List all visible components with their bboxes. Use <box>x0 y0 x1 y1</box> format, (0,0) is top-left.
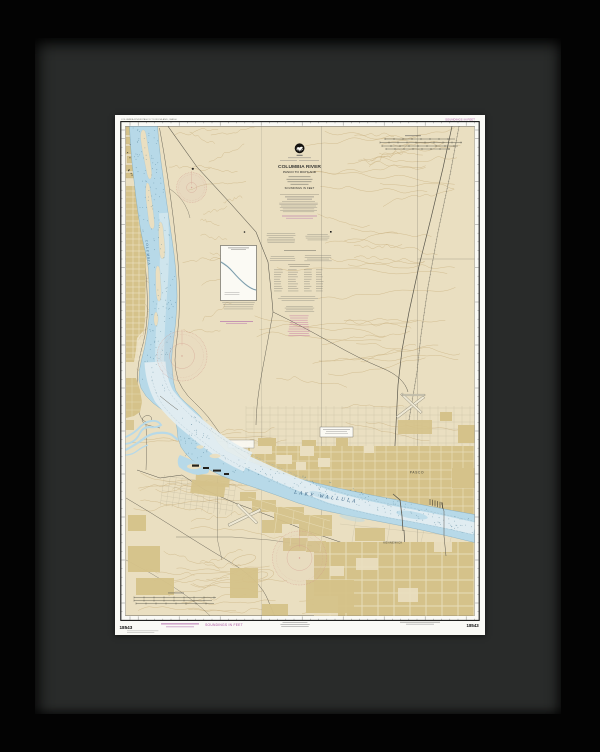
svg-text:COLUMBIA RIVER: COLUMBIA RIVER <box>278 164 322 170</box>
svg-text:COLUMBIA RIVER PASCO TO RICHLA: COLUMBIA RIVER PASCO TO RICHLAND, WASH. <box>121 118 177 121</box>
svg-text:SOUNDINGS IN FEET: SOUNDINGS IN FEET <box>445 117 475 121</box>
svg-text:SOUNDINGS IN FEET: SOUNDINGS IN FEET <box>205 623 243 627</box>
svg-text:18543: 18543 <box>120 625 133 630</box>
svg-text:PASCO: PASCO <box>410 470 424 474</box>
svg-text:KENNEWICK: KENNEWICK <box>383 540 402 544</box>
svg-text:18543: 18543 <box>467 623 480 628</box>
svg-text:PASCO TO RICHLAND: PASCO TO RICHLAND <box>283 170 317 174</box>
svg-text:SOUNDINGS IN FEET: SOUNDINGS IN FEET <box>285 186 315 190</box>
